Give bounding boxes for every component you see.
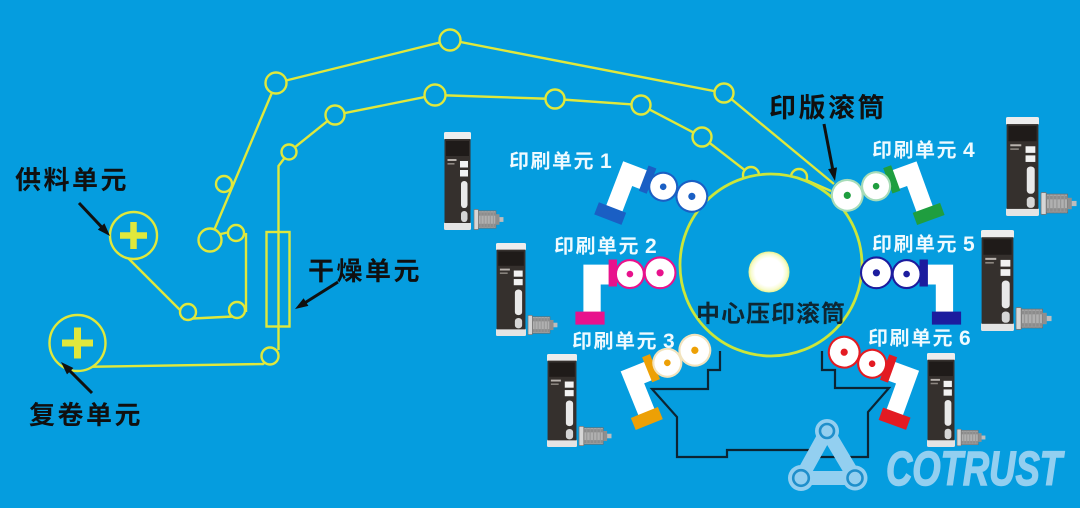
svg-text:1: 1: [600, 150, 612, 173]
svg-text:4: 4: [963, 139, 975, 162]
svg-text:6: 6: [959, 327, 971, 350]
svg-text:5: 5: [963, 233, 975, 256]
svg-text:3: 3: [663, 330, 675, 353]
svg-text:2: 2: [645, 235, 657, 258]
svg-text:COTRUST: COTRUST: [886, 443, 1065, 496]
